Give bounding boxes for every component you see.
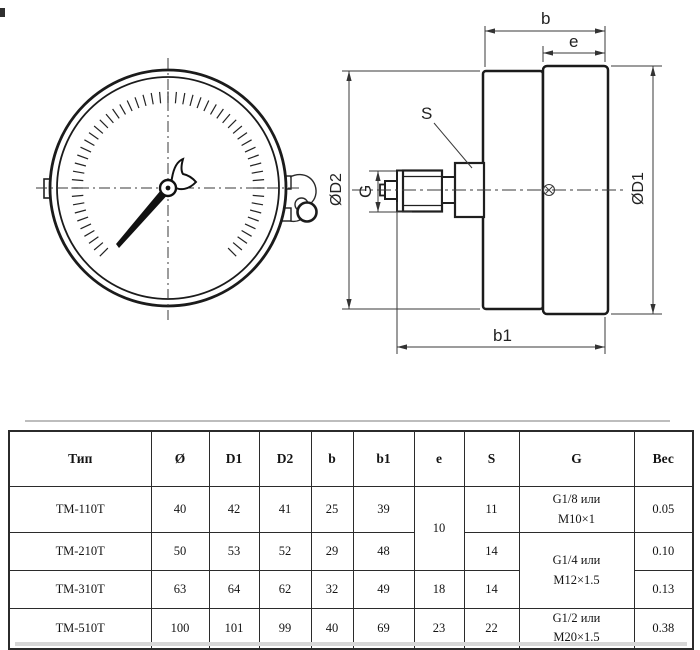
dim-label-e: e xyxy=(569,32,578,51)
col-header-b: b xyxy=(311,431,353,487)
dim-label-b: b xyxy=(541,9,550,28)
dim-label-s: S xyxy=(421,104,432,123)
dim-label-od1: ØD1 xyxy=(630,172,647,205)
cell-d1: 53 xyxy=(209,533,259,571)
cell-diameter: 40 xyxy=(151,487,209,533)
cell-s: 11 xyxy=(464,487,519,533)
front-view xyxy=(36,58,317,320)
cell-b: 25 xyxy=(311,487,353,533)
dimensions-table: Тип Ø D1 D2 b b1 e S G Вес ТМ-110Т 40 42… xyxy=(8,430,694,650)
table-header-row: Тип Ø D1 D2 b b1 e S G Вес xyxy=(9,431,693,487)
table-row-tm110t: ТМ-110Т 40 42 41 25 39 10 11 G1/8 или М1… xyxy=(9,487,693,533)
cell-d2: 52 xyxy=(259,533,311,571)
scan-artifact-corner xyxy=(0,8,5,17)
scan-artifact-top-band xyxy=(25,420,670,422)
cell-b: 29 xyxy=(311,533,353,571)
seal-ring xyxy=(298,203,317,222)
gauge-technical-drawing: b e S b1 G ØD2 ØD1 xyxy=(0,0,700,418)
cell-type: ТМ-210Т xyxy=(9,533,151,571)
cell-g: G1/8 или М10×1 xyxy=(519,487,634,533)
dim-label-b1: b1 xyxy=(493,326,512,345)
col-header-b1: b1 xyxy=(353,431,414,487)
dim-label-g: G xyxy=(356,185,375,198)
cell-d2: 62 xyxy=(259,571,311,609)
col-header-diameter: Ø xyxy=(151,431,209,487)
cell-b1: 48 xyxy=(353,533,414,571)
cell-diameter: 50 xyxy=(151,533,209,571)
cell-s: 14 xyxy=(464,571,519,609)
col-header-g: G xyxy=(519,431,634,487)
col-header-d1: D1 xyxy=(209,431,259,487)
cell-b1: 49 xyxy=(353,571,414,609)
clip-hook xyxy=(290,175,316,206)
col-header-s: S xyxy=(464,431,519,487)
cell-g-merged: G1/4 или М12×1.5 xyxy=(519,533,634,609)
col-header-type: Тип xyxy=(9,431,151,487)
cell-d1: 64 xyxy=(209,571,259,609)
cell-s: 14 xyxy=(464,533,519,571)
needle-hub-pin xyxy=(166,186,171,191)
cell-b1: 39 xyxy=(353,487,414,533)
cell-weight: 0.05 xyxy=(634,487,693,533)
col-header-d2: D2 xyxy=(259,431,311,487)
cell-b: 32 xyxy=(311,571,353,609)
cell-d1: 42 xyxy=(209,487,259,533)
cell-weight: 0.13 xyxy=(634,571,693,609)
cell-diameter: 63 xyxy=(151,571,209,609)
cell-type: ТМ-310Т xyxy=(9,571,151,609)
cell-e: 18 xyxy=(414,571,464,609)
cell-weight: 0.10 xyxy=(634,533,693,571)
cell-e-merged: 10 xyxy=(414,487,464,571)
dim-label-od2: ØD2 xyxy=(328,173,345,206)
col-header-weight: Вес xyxy=(634,431,693,487)
table-row-tm210t: ТМ-210Т 50 53 52 29 48 14 G1/4 или М12×1… xyxy=(9,533,693,571)
cell-d2: 41 xyxy=(259,487,311,533)
col-header-e: e xyxy=(414,431,464,487)
cell-type: ТМ-110Т xyxy=(9,487,151,533)
side-view xyxy=(352,66,627,314)
scan-artifact-bottom-band xyxy=(15,642,687,646)
